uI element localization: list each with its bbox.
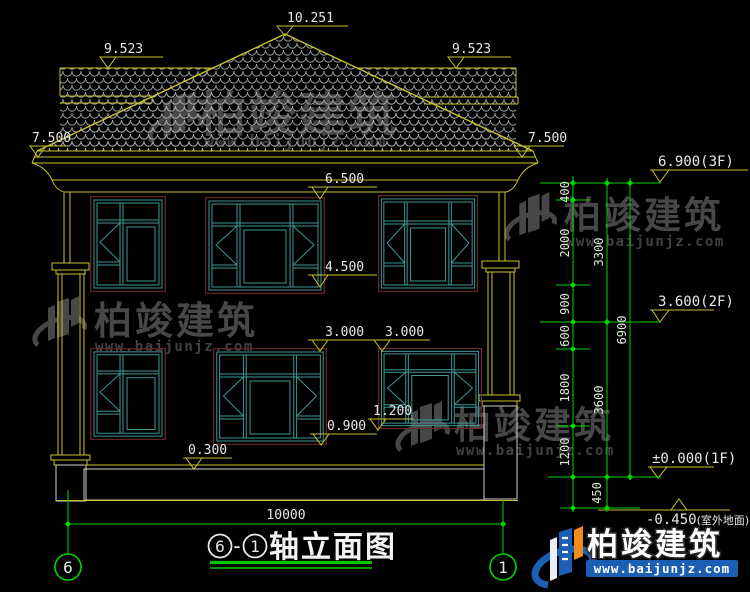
- elev-value: 9.523: [452, 42, 491, 57]
- elev-marker-1f-window-top-center: 3.000: [308, 325, 377, 351]
- title-bubble-start-number: 6: [215, 537, 225, 556]
- watermark-url: www.baijunjz.com: [566, 234, 725, 250]
- logo-building-right: [574, 526, 583, 560]
- watermark-logo-icon: [35, 296, 85, 345]
- dim-400: 400: [558, 181, 572, 203]
- window-2f-center: [206, 198, 325, 294]
- plinth-brick-band: [84, 469, 484, 500]
- elev-marker-right-wing: 9.523: [448, 42, 511, 68]
- right-pilaster-capital-lip: [486, 268, 515, 272]
- watermark-logo-icon: [507, 192, 555, 239]
- badge-url-text: www.baijunjz.com: [594, 561, 730, 576]
- elev-value: 10.251: [287, 11, 334, 26]
- elev-marker-ridge: 10.251: [277, 11, 348, 36]
- level-1f: ±0.000(1F): [648, 451, 736, 478]
- left-pilaster-capital-lip: [56, 270, 85, 274]
- elev-value: 0.300: [188, 443, 227, 458]
- elev-marker-2f-window-top: 6.500: [308, 172, 377, 199]
- watermark-right: 柏竣建筑 www.baijunjz.com: [507, 192, 725, 250]
- title-bubble-end-number: 1: [250, 537, 260, 556]
- drawing-title: 6 - 1 轴立面图: [209, 530, 398, 568]
- level-value: 3.600(2F): [658, 294, 734, 310]
- window-2f-right: [379, 196, 478, 292]
- badge-brand-text: 柏竣建筑: [587, 527, 723, 563]
- dim-1200: 1200: [558, 438, 572, 467]
- level-value: -0.450(室外地面): [646, 512, 749, 528]
- window-1f-left: [91, 349, 166, 440]
- left-pilaster-capital: [52, 263, 89, 270]
- dim-6900: 6900: [615, 316, 629, 345]
- axis-number-right: 1: [498, 558, 508, 577]
- title-dash: -: [233, 534, 240, 558]
- elev-value: 9.523: [104, 42, 143, 57]
- dim-1800: 1800: [558, 374, 572, 403]
- level-value: ±0.000(1F): [652, 451, 736, 467]
- level-2f: 3.600(2F): [650, 294, 734, 322]
- right-pilaster-capital: [482, 261, 519, 268]
- left-pedestal-brick: [56, 465, 86, 501]
- left-pedestal-cap: [51, 455, 90, 460]
- cad-elevation-drawing: 柏竣建筑 www.baijunjz.com 柏竣建筑 www.baijunjz.…: [0, 0, 750, 592]
- axis-number-left: 6: [63, 558, 73, 577]
- roof-right-wing-tiles: [357, 68, 516, 151]
- elev-marker-1f-window-top-right: 3.000: [372, 325, 430, 351]
- right-pilaster-shaft: [488, 272, 514, 395]
- elev-value: 6.500: [325, 172, 364, 187]
- watermark-bottom: 柏竣建筑 www.baijunjz.com: [398, 401, 615, 459]
- elev-marker-eave-right: 7.500: [514, 131, 567, 157]
- logo-building-left: [550, 537, 557, 581]
- elev-value: 7.500: [32, 131, 71, 146]
- elev-value: 0.900: [327, 419, 366, 434]
- level-outdoor-ground: -0.450(室外地面): [598, 499, 749, 528]
- dim-3600: 3600: [592, 386, 606, 415]
- watermark-url: www.baijunjz.com: [456, 443, 615, 459]
- elev-value: 3.000: [385, 325, 424, 340]
- cornice: [32, 151, 538, 192]
- window-1f-center: [214, 349, 327, 445]
- level-value: 6.900(3F): [658, 154, 734, 170]
- dim-600: 600: [558, 325, 572, 347]
- right-pilaster-upper-post: [499, 192, 505, 261]
- dim-450: 450: [590, 482, 604, 504]
- roof-left-wing-tiles: [60, 68, 214, 151]
- elev-marker-left-wing: 9.523: [100, 42, 163, 68]
- watermark-url: www.baijunjz.com: [95, 339, 254, 355]
- watermark-left: 柏竣建筑 www.baijunjz.com: [35, 296, 258, 355]
- level-3f: 6.900(3F): [650, 154, 748, 182]
- dim-10000: 10000: [266, 508, 305, 523]
- brand-badge: 柏竣建筑 www.baijunjz.com: [535, 526, 738, 585]
- elev-value: 3.000: [325, 325, 364, 340]
- watermark-brand: 柏竣建筑: [94, 299, 258, 343]
- right-pedestal-cap: [479, 395, 520, 401]
- window-2f-left: [91, 197, 166, 292]
- left-pedestal-cap2: [54, 460, 87, 465]
- elev-value: 7.500: [528, 131, 567, 146]
- dim-3300: 3300: [592, 238, 606, 267]
- title-text: 轴立面图: [269, 530, 397, 565]
- left-pilaster-upper-post: [64, 192, 70, 263]
- drawing-svg: 柏竣建筑 www.baijunjz.com 柏竣建筑 www.baijunjz.…: [0, 0, 750, 592]
- elev-value: 1.200: [373, 404, 412, 419]
- dim-2000: 2000: [558, 229, 572, 258]
- elev-value: 4.500: [325, 260, 364, 275]
- dim-900: 900: [558, 293, 572, 315]
